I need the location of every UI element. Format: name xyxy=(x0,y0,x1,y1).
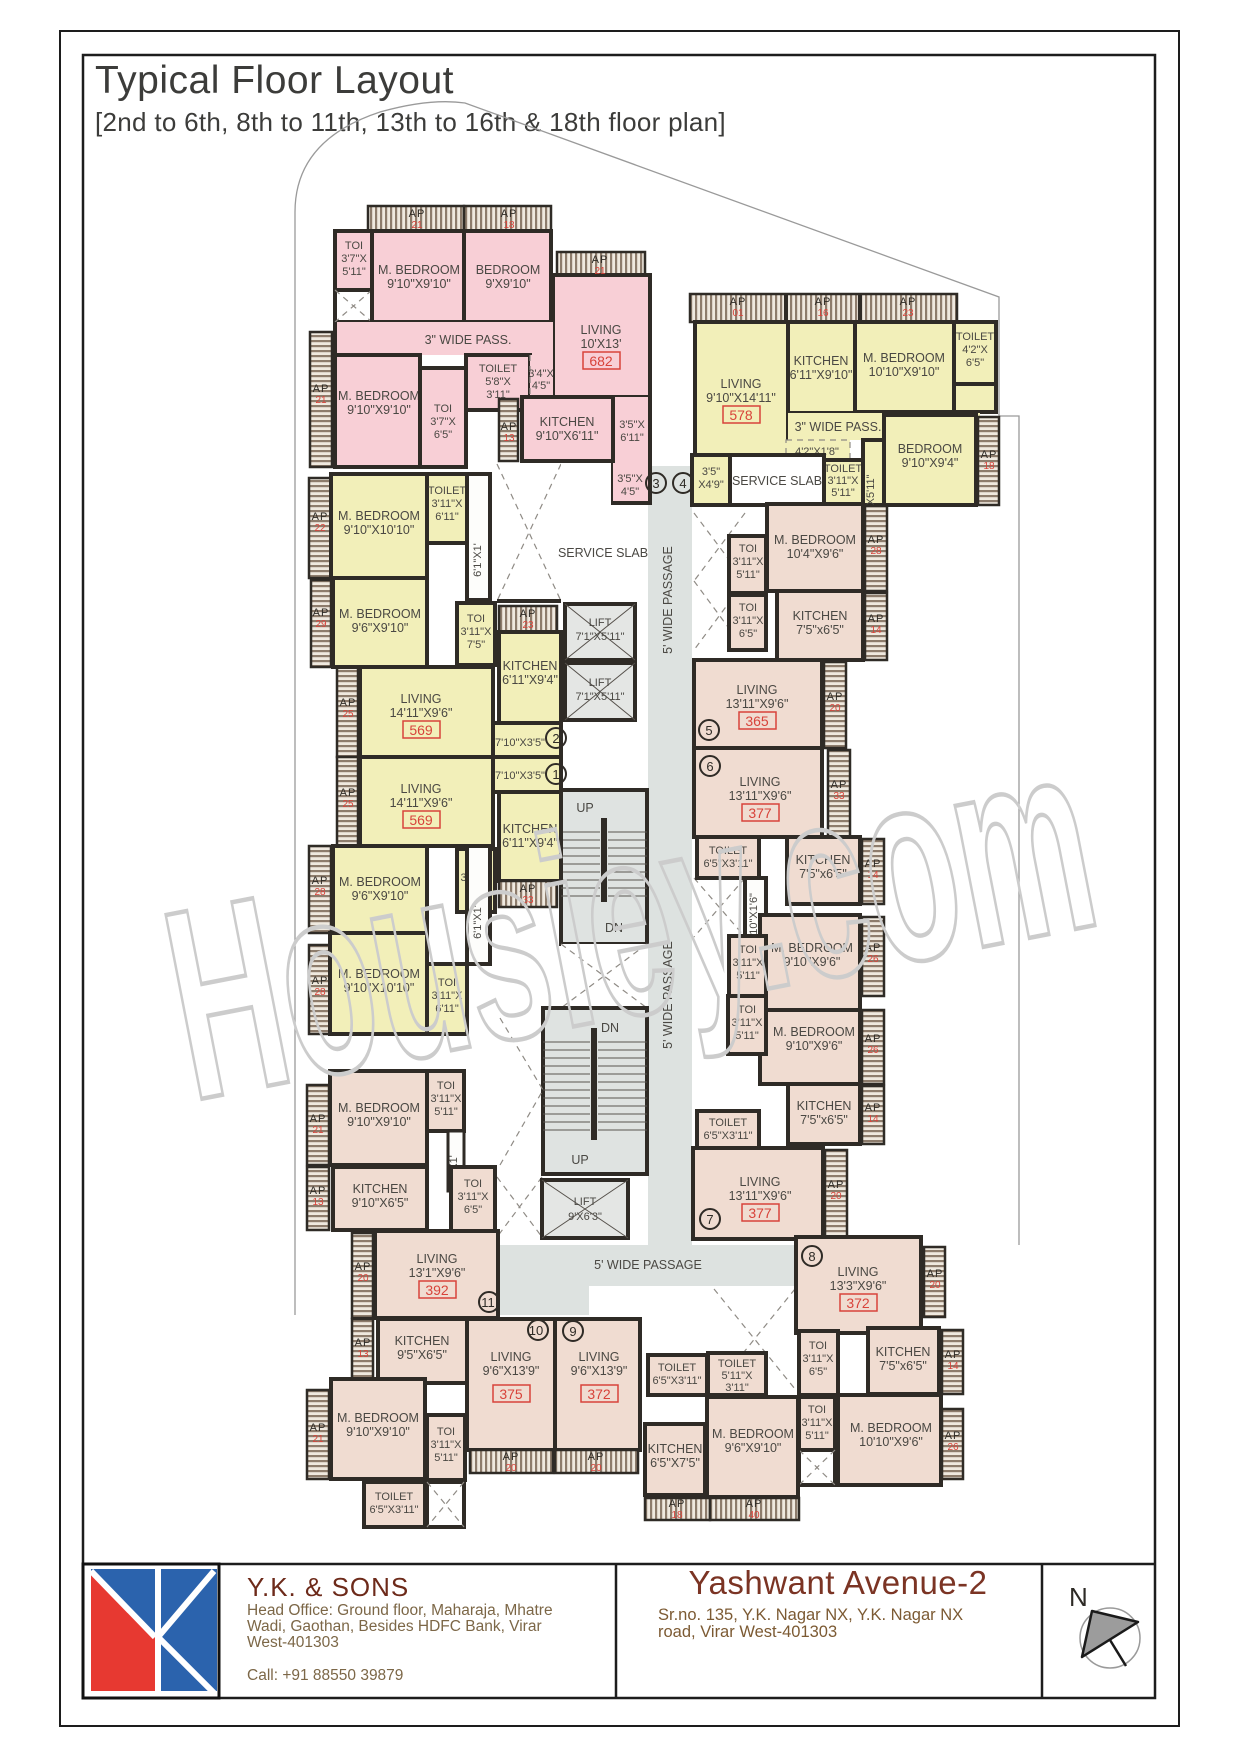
svg-text:N: N xyxy=(1069,1582,1088,1612)
svg-text:6'11"X9'4": 6'11"X9'4" xyxy=(502,673,558,687)
svg-text:9'10"X14'11": 9'10"X14'11" xyxy=(706,391,776,405)
svg-text:M. BEDROOM: M. BEDROOM xyxy=(850,1421,932,1435)
svg-text:AP: AP xyxy=(501,208,518,220)
svg-text:20: 20 xyxy=(829,703,841,714)
svg-text:M. BEDROOM: M. BEDROOM xyxy=(863,351,945,365)
svg-text:AP: AP xyxy=(865,1033,882,1045)
svg-text:6'5": 6'5" xyxy=(966,357,984,369)
svg-text:TOILET: TOILET xyxy=(375,1491,414,1503)
svg-text:14'11"X9'6": 14'11"X9'6" xyxy=(390,706,453,720)
svg-text:SERVICE SLAB: SERVICE SLAB xyxy=(558,546,648,560)
svg-text:4: 4 xyxy=(679,476,686,491)
svg-text:LIVING: LIVING xyxy=(581,323,622,337)
svg-text:KITCHEN: KITCHEN xyxy=(797,1099,852,1113)
svg-text:TOI: TOI xyxy=(464,1178,482,1190)
svg-text:13'1"X9'6": 13'1"X9'6" xyxy=(409,1266,466,1280)
svg-text:7'10"X3'5": 7'10"X3'5" xyxy=(495,770,545,782)
svg-text:TOI: TOI xyxy=(467,613,485,625)
svg-text:28: 28 xyxy=(870,546,882,557)
svg-text:9'10"X9'10": 9'10"X9'10" xyxy=(387,277,451,291)
svg-text:6'5"X3'11": 6'5"X3'11" xyxy=(703,1130,752,1142)
svg-text:18: 18 xyxy=(983,461,995,472)
svg-text:LIFT: LIFT xyxy=(589,617,612,629)
svg-text:AP: AP xyxy=(900,296,917,308)
svg-text:AP: AP xyxy=(340,697,357,709)
svg-text:Wadi, Gaothan, Besides HDFC Ba: Wadi, Gaothan, Besides HDFC Bank, Virar xyxy=(247,1618,542,1635)
svg-text:26: 26 xyxy=(867,1045,879,1056)
svg-text:M. BEDROOM: M. BEDROOM xyxy=(338,509,420,523)
svg-text:6'5"X7'5": 6'5"X7'5" xyxy=(650,1456,700,1470)
svg-text:AP: AP xyxy=(588,1451,605,1463)
svg-text:21: 21 xyxy=(594,266,606,277)
svg-text:West-401303: West-401303 xyxy=(247,1634,339,1651)
svg-text:10: 10 xyxy=(529,1323,543,1338)
svg-text:3'11"X: 3'11"X xyxy=(802,1417,834,1429)
svg-text:5'11": 5'11" xyxy=(805,1430,829,1442)
svg-text:13: 13 xyxy=(503,433,515,444)
svg-text:9'10"X10'10": 9'10"X10'10" xyxy=(344,523,415,537)
svg-text:KITCHEN: KITCHEN xyxy=(794,354,849,368)
svg-text:18: 18 xyxy=(503,220,515,231)
svg-text:29: 29 xyxy=(315,619,327,630)
svg-text:5'11": 5'11" xyxy=(831,487,855,499)
svg-text:TOI: TOI xyxy=(345,240,363,252)
svg-text:AP: AP xyxy=(868,613,885,625)
svg-text:AP: AP xyxy=(313,383,330,395)
svg-text:4'5": 4'5" xyxy=(621,486,639,498)
svg-text:UP: UP xyxy=(571,1153,588,1167)
svg-text:3" WIDE PASS.: 3" WIDE PASS. xyxy=(795,420,882,434)
svg-text:3'11": 3'11" xyxy=(725,1382,749,1394)
svg-text:LIVING: LIVING xyxy=(838,1265,879,1279)
svg-text:KITCHEN: KITCHEN xyxy=(503,659,558,673)
svg-text:6'5": 6'5" xyxy=(809,1366,827,1378)
svg-text:3'7"X: 3'7"X xyxy=(341,253,367,265)
svg-text:9: 9 xyxy=(569,1324,576,1339)
svg-text:3" WIDE PASS.: 3" WIDE PASS. xyxy=(425,333,512,347)
svg-text:9'10"X6'11": 9'10"X6'11" xyxy=(536,429,599,443)
svg-text:LIVING: LIVING xyxy=(737,683,778,697)
svg-text:9'10"X6'5": 9'10"X6'5" xyxy=(352,1196,409,1210)
svg-text:7'5"x6'5": 7'5"x6'5" xyxy=(800,1113,848,1127)
svg-text:AP: AP xyxy=(310,1185,327,1197)
svg-text:8: 8 xyxy=(808,1249,815,1264)
svg-text:5: 5 xyxy=(705,723,712,738)
svg-text:AP: AP xyxy=(312,511,329,523)
svg-text:3'11"X: 3'11"X xyxy=(733,556,765,568)
svg-text:7: 7 xyxy=(706,1212,713,1227)
svg-text:AP: AP xyxy=(746,1498,763,1510)
svg-text:14: 14 xyxy=(870,625,882,636)
svg-text:AP: AP xyxy=(827,691,844,703)
svg-text:Typical Floor Layout: Typical Floor Layout xyxy=(95,59,454,102)
svg-text:AP: AP xyxy=(355,1337,372,1349)
svg-text:AP: AP xyxy=(520,608,537,620)
svg-text:9'6"X9'10": 9'6"X9'10" xyxy=(352,621,409,635)
svg-text:7'5": 7'5" xyxy=(467,639,485,651)
svg-text:9'X6'3": 9'X6'3" xyxy=(568,1211,602,1223)
svg-text:3'11"X: 3'11"X xyxy=(733,615,765,627)
svg-text:AP: AP xyxy=(501,421,518,433)
svg-text:392: 392 xyxy=(425,1282,449,1298)
svg-text:25: 25 xyxy=(342,799,354,810)
svg-text:365: 365 xyxy=(745,713,769,729)
svg-text:TOI: TOI xyxy=(739,543,757,555)
svg-text:M. BEDROOM: M. BEDROOM xyxy=(338,389,420,403)
svg-text:TOILET: TOILET xyxy=(658,1362,697,1374)
svg-text:LIVING: LIVING xyxy=(721,377,762,391)
svg-text:3'5": 3'5" xyxy=(702,466,720,478)
svg-text:569: 569 xyxy=(409,722,433,738)
svg-text:BEDROOM: BEDROOM xyxy=(898,442,963,456)
svg-text:25: 25 xyxy=(342,709,354,720)
svg-text:7'5"x6'5": 7'5"x6'5" xyxy=(796,623,844,637)
svg-text:road, Virar West-401303: road, Virar West-401303 xyxy=(658,1623,837,1641)
svg-text:AP: AP xyxy=(503,1451,520,1463)
svg-text:LIFT: LIFT xyxy=(589,677,612,689)
svg-text:[2nd to 6th, 8th to 11th, 13th: [2nd to 6th, 8th to 11th, 13th to 16th &… xyxy=(95,107,726,137)
svg-text:9'10"X9'10": 9'10"X9'10" xyxy=(346,1425,410,1439)
svg-text:01: 01 xyxy=(732,308,744,319)
svg-text:AP: AP xyxy=(828,1179,845,1191)
svg-text:TOI: TOI xyxy=(739,602,757,614)
svg-text:KITCHEN: KITCHEN xyxy=(395,1334,450,1348)
svg-text:9'10"X9'4": 9'10"X9'4" xyxy=(902,456,959,470)
svg-text:TOILET: TOILET xyxy=(956,331,995,343)
svg-text:20: 20 xyxy=(505,1463,517,1474)
svg-text:LIFT: LIFT xyxy=(574,1196,597,1208)
svg-text:Sr.no. 135, Y.K. Nagar NX, Y.K: Sr.no. 135, Y.K. Nagar NX, Y.K. Nagar NX xyxy=(658,1606,963,1624)
svg-text:578: 578 xyxy=(729,407,753,423)
svg-text:6'5"X3'11": 6'5"X3'11" xyxy=(369,1504,418,1516)
svg-text:X4'9": X4'9" xyxy=(698,479,724,491)
svg-text:20: 20 xyxy=(929,1280,941,1291)
svg-text:14: 14 xyxy=(867,1114,879,1125)
svg-text:LIVING: LIVING xyxy=(491,1350,532,1364)
svg-text:5' WIDE PASSAGE: 5' WIDE PASSAGE xyxy=(594,1258,702,1272)
svg-text:10'10"X9'10": 10'10"X9'10" xyxy=(869,365,940,379)
svg-text:14: 14 xyxy=(947,1361,959,1372)
svg-text:TOI: TOI xyxy=(437,1426,455,1438)
svg-text:AP: AP xyxy=(669,1498,686,1510)
svg-text:21: 21 xyxy=(315,395,327,406)
svg-text:Yashwant Avenue-2: Yashwant Avenue-2 xyxy=(689,1564,988,1601)
svg-text:KITCHEN: KITCHEN xyxy=(648,1442,703,1456)
svg-text:5'11": 5'11" xyxy=(434,1452,458,1464)
svg-text:M. BEDROOM: M. BEDROOM xyxy=(774,533,856,547)
svg-text:682: 682 xyxy=(589,353,613,369)
svg-text:TOI: TOI xyxy=(434,403,452,415)
svg-text:6'5": 6'5" xyxy=(739,628,757,640)
svg-text:6'5": 6'5" xyxy=(464,1204,482,1216)
svg-text:21: 21 xyxy=(411,220,423,231)
svg-text:TOI: TOI xyxy=(809,1340,827,1352)
svg-text:TOILET: TOILET xyxy=(709,1117,748,1129)
svg-text:3'7"X: 3'7"X xyxy=(430,416,456,428)
svg-text:372: 372 xyxy=(587,1386,611,1402)
svg-text:10'4"X9'6": 10'4"X9'6" xyxy=(787,547,844,561)
svg-text:Call: +91 88550 39879: Call: +91 88550 39879 xyxy=(247,1667,403,1684)
svg-text:3'4"X: 3'4"X xyxy=(528,368,554,380)
svg-text:M. BEDROOM: M. BEDROOM xyxy=(337,1411,419,1425)
svg-text:23: 23 xyxy=(902,308,914,319)
svg-text:AP: AP xyxy=(592,254,609,266)
svg-text:AP: AP xyxy=(815,296,832,308)
svg-text:3'5"X: 3'5"X xyxy=(617,473,643,485)
svg-text:3'11"X: 3'11"X xyxy=(458,1191,490,1203)
svg-text:6'11"X9'10": 6'11"X9'10" xyxy=(790,368,853,382)
svg-text:LIVING: LIVING xyxy=(401,692,442,706)
svg-text:5' WIDE PASSAGE: 5' WIDE PASSAGE xyxy=(661,546,675,654)
svg-text:6'11": 6'11" xyxy=(620,432,644,444)
svg-text:KITCHEN: KITCHEN xyxy=(793,609,848,623)
svg-text:TOILET: TOILET xyxy=(428,485,467,497)
svg-text:BEDROOM: BEDROOM xyxy=(476,263,541,277)
svg-text:13: 13 xyxy=(312,1197,324,1208)
svg-text:10'10"X9'6": 10'10"X9'6" xyxy=(859,1435,923,1449)
svg-text:SERVICE SLAB: SERVICE SLAB xyxy=(732,474,822,488)
svg-text:9'6"X9'10": 9'6"X9'10" xyxy=(725,1441,782,1455)
svg-text:11: 11 xyxy=(481,1295,495,1310)
svg-text:22: 22 xyxy=(314,523,326,534)
svg-text:9'6"X13'9": 9'6"X13'9" xyxy=(571,1364,628,1378)
svg-text:M. BEDROOM: M. BEDROOM xyxy=(378,263,460,277)
svg-text:9'6"X13'9": 9'6"X13'9" xyxy=(483,1364,540,1378)
svg-text:AP: AP xyxy=(409,208,426,220)
svg-text:TOILET: TOILET xyxy=(479,363,518,375)
svg-text:16: 16 xyxy=(817,308,829,319)
svg-text:M. BEDROOM: M. BEDROOM xyxy=(712,1427,794,1441)
svg-text:AP: AP xyxy=(945,1349,962,1361)
svg-text:13'11"X9'6": 13'11"X9'6" xyxy=(729,1189,792,1203)
svg-text:TOILET: TOILET xyxy=(824,463,863,475)
svg-text:KITCHEN: KITCHEN xyxy=(353,1182,408,1196)
svg-text:AP: AP xyxy=(340,787,357,799)
svg-text:AP: AP xyxy=(868,534,885,546)
svg-text:3'5"X: 3'5"X xyxy=(619,419,645,431)
svg-text:Head Office: Ground floor, Mah: Head Office: Ground floor, Maharaja, Mha… xyxy=(247,1602,553,1619)
svg-text:7'1"X5'11": 7'1"X5'11" xyxy=(575,691,624,703)
svg-text:AP: AP xyxy=(313,607,330,619)
svg-text:6'1"X1': 6'1"X1' xyxy=(472,543,484,577)
svg-text:40: 40 xyxy=(748,1510,760,1521)
svg-text:LIVING: LIVING xyxy=(579,1350,620,1364)
svg-text:6'11": 6'11" xyxy=(435,511,459,523)
svg-text:9'X9'10": 9'X9'10" xyxy=(485,277,530,291)
svg-text:Y.K. & SONS: Y.K. & SONS xyxy=(247,1572,409,1602)
svg-text:7'1"X5'11": 7'1"X5'11" xyxy=(575,631,624,643)
svg-text:KITCHEN: KITCHEN xyxy=(540,415,595,429)
svg-text:AP: AP xyxy=(730,296,747,308)
svg-text:4'2"X: 4'2"X xyxy=(962,344,988,356)
svg-text:3'11"X: 3'11"X xyxy=(803,1353,835,1365)
svg-text:18: 18 xyxy=(671,1510,683,1521)
svg-text:6'5"X3'11": 6'5"X3'11" xyxy=(652,1375,701,1387)
svg-text:AP: AP xyxy=(981,449,998,461)
svg-text:AP: AP xyxy=(310,1422,327,1434)
svg-text:KITCHEN: KITCHEN xyxy=(876,1345,931,1359)
svg-text:3'11"X: 3'11"X xyxy=(431,1439,463,1451)
svg-text:TOILET: TOILET xyxy=(718,1358,757,1370)
svg-text:TOI: TOI xyxy=(808,1404,826,1416)
svg-text:3'11"X: 3'11"X xyxy=(432,498,464,510)
svg-text:LIVING: LIVING xyxy=(740,1175,781,1189)
svg-text:7'5"x6'5": 7'5"x6'5" xyxy=(879,1359,927,1373)
svg-text:13'3"X9'6": 13'3"X9'6" xyxy=(830,1279,887,1293)
svg-text:377: 377 xyxy=(748,1205,772,1221)
svg-text:10'X13': 10'X13' xyxy=(581,337,622,351)
svg-text:26: 26 xyxy=(947,1442,959,1453)
svg-text:21: 21 xyxy=(312,1434,324,1445)
svg-text:20: 20 xyxy=(357,1273,369,1284)
svg-text:13: 13 xyxy=(357,1349,369,1360)
svg-text:23: 23 xyxy=(522,620,534,631)
svg-text:9'5"X6'5": 9'5"X6'5" xyxy=(397,1348,447,1362)
svg-text:AP: AP xyxy=(355,1261,372,1273)
svg-text:5'11"X: 5'11"X xyxy=(722,1370,754,1382)
svg-text:3: 3 xyxy=(652,476,659,491)
svg-text:5'8"X: 5'8"X xyxy=(485,376,511,388)
svg-text:AP: AP xyxy=(927,1268,944,1280)
svg-text:5'11": 5'11" xyxy=(736,569,760,581)
svg-text:20: 20 xyxy=(590,1463,602,1474)
svg-text:2: 2 xyxy=(552,731,559,746)
svg-text:375: 375 xyxy=(499,1386,523,1402)
svg-text:372: 372 xyxy=(846,1295,870,1311)
svg-text:13'11"X9'6": 13'11"X9'6" xyxy=(726,697,789,711)
svg-text:5'11": 5'11" xyxy=(342,266,366,278)
svg-text:LIVING: LIVING xyxy=(401,782,442,796)
svg-text:M. BEDROOM: M. BEDROOM xyxy=(339,607,421,621)
svg-text:3'11"X: 3'11"X xyxy=(461,626,493,638)
svg-text:AP: AP xyxy=(945,1430,962,1442)
svg-text:AP: AP xyxy=(865,1102,882,1114)
svg-text:4'5": 4'5" xyxy=(532,380,550,392)
svg-text:LIVING: LIVING xyxy=(417,1252,458,1266)
svg-text:7'10"X3'5": 7'10"X3'5" xyxy=(495,737,545,749)
svg-text:3'11"X: 3'11"X xyxy=(828,475,860,487)
svg-text:20: 20 xyxy=(830,1191,842,1202)
svg-text:6'5": 6'5" xyxy=(434,429,452,441)
svg-text:9'10"X9'10": 9'10"X9'10" xyxy=(347,403,411,417)
